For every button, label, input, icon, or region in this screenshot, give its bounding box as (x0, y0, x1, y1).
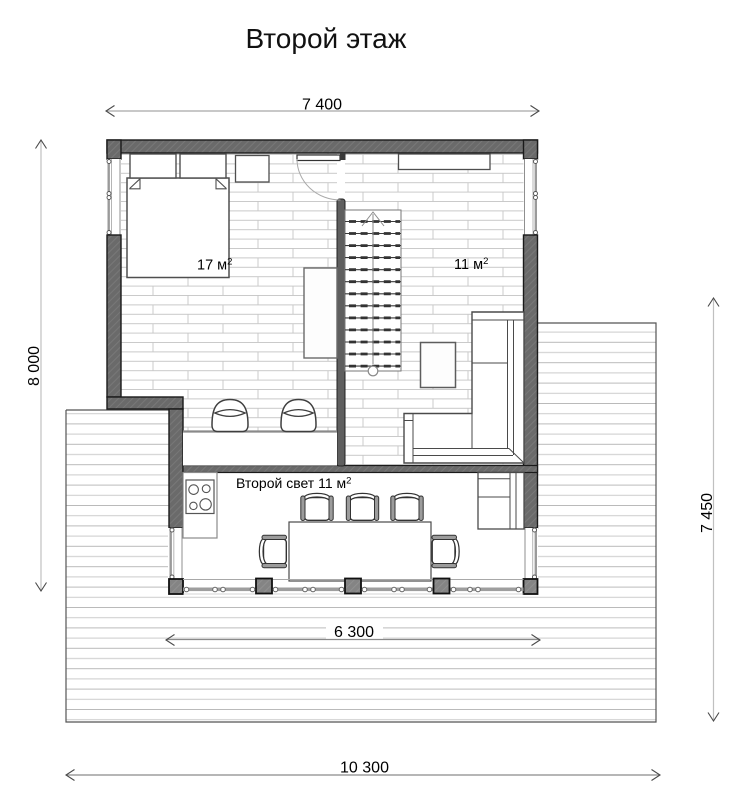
svg-text:7 400: 7 400 (302, 97, 342, 114)
svg-text:8 000: 8 000 (26, 346, 43, 386)
svg-text:Второй свет 11 м2: Второй свет 11 м2 (236, 475, 351, 491)
svg-text:10 300: 10 300 (340, 760, 389, 777)
svg-text:6 300: 6 300 (334, 624, 374, 641)
svg-text:Второй этаж: Второй этаж (246, 23, 407, 54)
svg-text:7 450: 7 450 (699, 493, 716, 533)
svg-text:17 м2: 17 м2 (197, 257, 232, 274)
